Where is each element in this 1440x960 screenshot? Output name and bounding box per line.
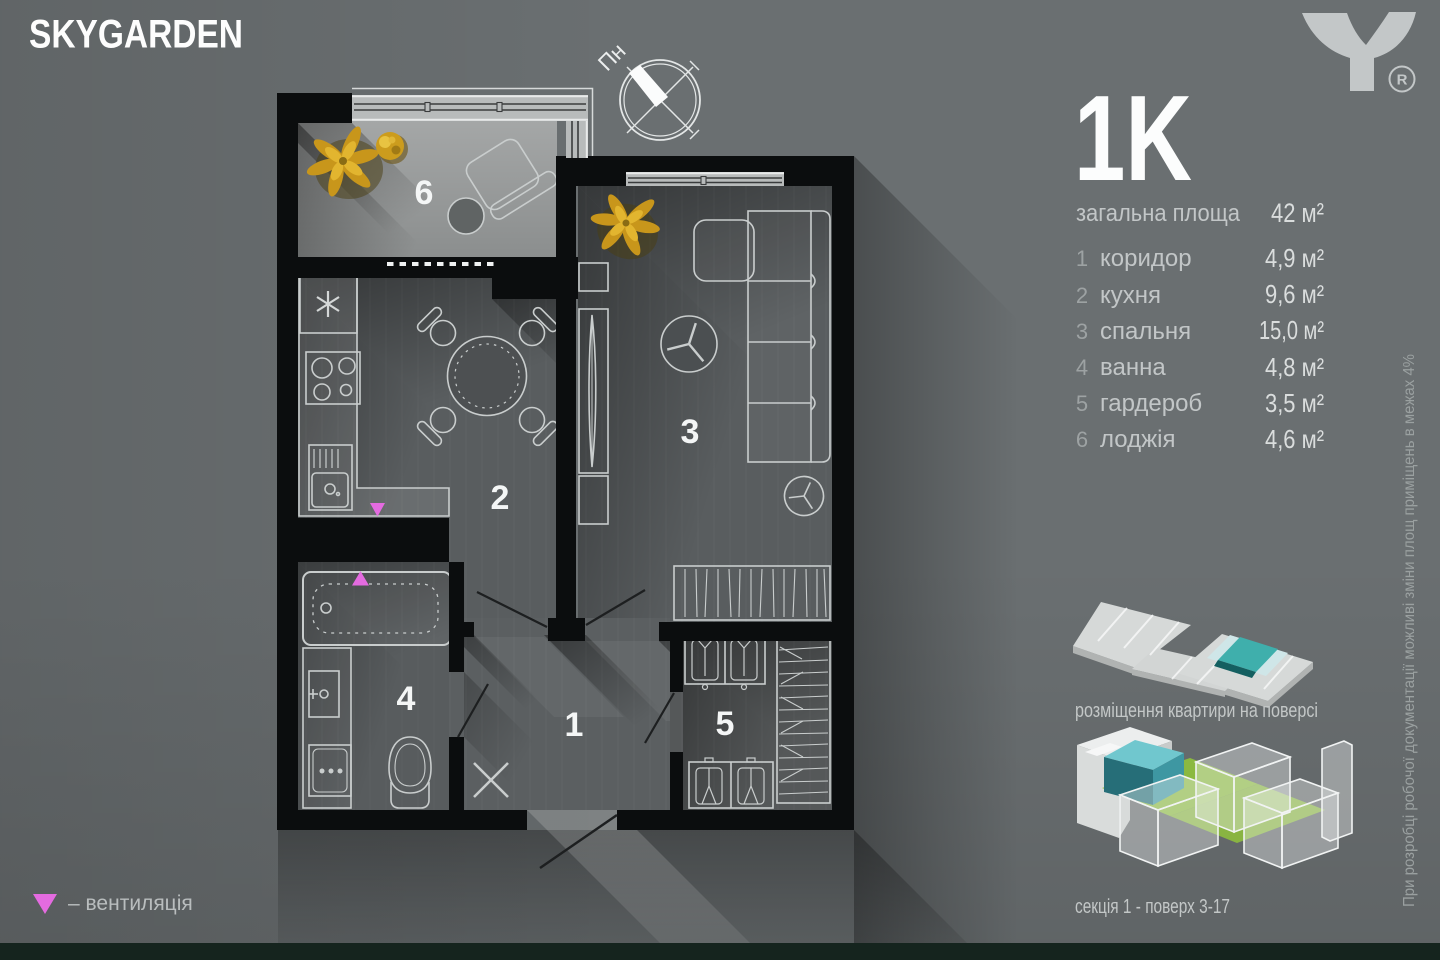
svg-text:– вентиляція: – вентиляція (68, 892, 193, 915)
svg-text:секція 1 - поверх 3-17: секція 1 - поверх 3-17 (1075, 895, 1230, 918)
svg-text:кухня: кухня (1100, 282, 1161, 309)
svg-text:9,6 м²: 9,6 м² (1265, 279, 1324, 309)
svg-text:гардероб: гардероб (1100, 390, 1202, 417)
svg-text:розміщення квартири на поверсі: розміщення квартири на поверсі (1075, 699, 1318, 722)
svg-text:коридор: коридор (1100, 245, 1192, 272)
svg-text:4,8 м²: 4,8 м² (1265, 352, 1324, 382)
svg-text:При розробці робочої документа: При розробці робочої документації можлив… (1401, 354, 1418, 907)
svg-text:3,5 м²: 3,5 м² (1265, 388, 1324, 418)
svg-text:3: 3 (681, 413, 700, 451)
svg-text:42 м²: 42 м² (1271, 198, 1324, 228)
svg-text:ванна: ванна (1100, 354, 1166, 381)
svg-text:3: 3 (1076, 319, 1088, 344)
svg-text:5: 5 (1076, 391, 1088, 416)
svg-text:4: 4 (1076, 355, 1088, 380)
svg-text:спальня: спальня (1100, 318, 1191, 345)
svg-text:1: 1 (1076, 246, 1088, 271)
svg-text:2: 2 (491, 479, 510, 517)
svg-text:загальна площа: загальна площа (1076, 200, 1241, 227)
svg-text:5: 5 (716, 705, 735, 743)
svg-text:SKYGARDEN: SKYGARDEN (29, 13, 243, 57)
svg-text:1K: 1K (1074, 70, 1192, 206)
svg-text:4,6 м²: 4,6 м² (1265, 424, 1324, 454)
svg-text:6: 6 (415, 174, 434, 212)
svg-text:R: R (1397, 72, 1408, 89)
svg-text:4: 4 (397, 680, 416, 718)
svg-text:6: 6 (1076, 427, 1088, 452)
svg-text:лоджія: лоджія (1100, 426, 1175, 453)
svg-text:2: 2 (1076, 283, 1088, 308)
svg-text:1: 1 (565, 706, 584, 744)
svg-text:15,0 м²: 15,0 м² (1259, 315, 1324, 345)
svg-text:4,9 м²: 4,9 м² (1265, 243, 1324, 273)
